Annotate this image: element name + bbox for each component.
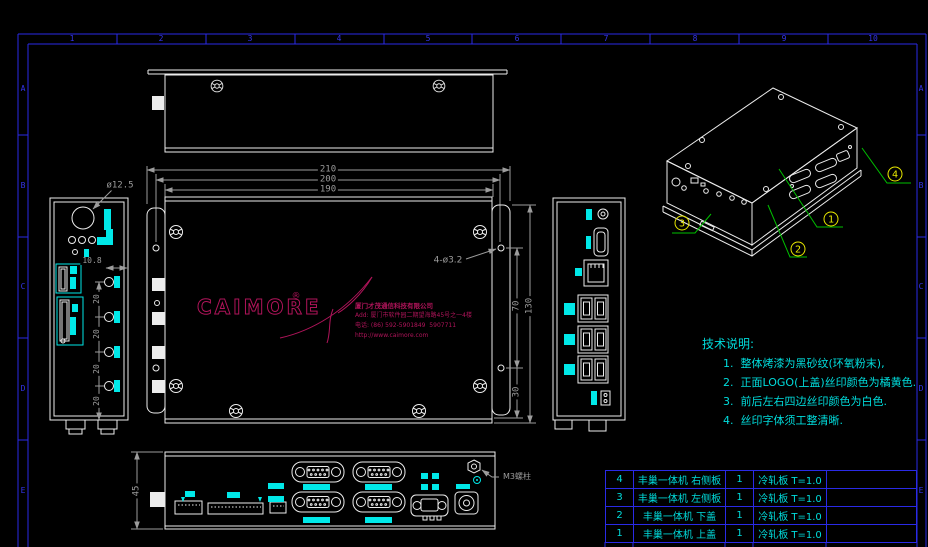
bom-qty: 1 (725, 506, 753, 524)
bom-qty: 1 (725, 524, 753, 542)
bom-qty: 1 (725, 488, 753, 506)
dim-30: 30 (513, 385, 522, 400)
zone-number: 10 (868, 35, 878, 43)
isometric-view: 3 1 2 4 (663, 88, 911, 257)
zone-letter-right: B (919, 182, 924, 190)
bom-remark (826, 506, 916, 524)
tech-note-item: 2. 正面LOGO(上盖)丝印颜色为橘黄色. (723, 377, 916, 388)
zone-letter-left: E (21, 487, 26, 495)
bottom-view (131, 452, 499, 529)
svg-text:4: 4 (892, 170, 898, 181)
dim-200: 200 (318, 176, 338, 185)
bom-no: 1 (605, 524, 633, 542)
zone-number: 3 (248, 35, 253, 43)
zone-letter-right: E (919, 487, 924, 495)
cad-drawing-canvas: CAIMORE (0, 0, 928, 547)
bom-name: 丰巢一体机 下盖 (633, 506, 725, 524)
svg-text:1: 1 (828, 215, 834, 226)
tech-note-item: 3. 前后左右四边丝印颜色为白色. (723, 396, 887, 407)
zone-letter-left: A (21, 85, 26, 93)
zone-number: 8 (693, 35, 698, 43)
company-website: http://www.caimore.com (355, 333, 428, 339)
dim-20: 20 (93, 362, 101, 376)
dim-130: 130 (526, 296, 535, 316)
dim-45: 45 (133, 484, 142, 499)
left-side-view (50, 190, 128, 434)
zone-letter-right: D (919, 385, 924, 393)
bom-no: 3 (605, 488, 633, 506)
balloon-2: 2 (791, 242, 805, 256)
dim-hole-callout: 4-ø3.2 (432, 257, 465, 266)
top-view (148, 70, 507, 152)
bom-remark (826, 470, 916, 488)
bom-remark (826, 524, 916, 542)
cad-linework: CAIMORE (0, 0, 928, 547)
dim-20: 20 (93, 292, 101, 306)
svg-text:3: 3 (679, 219, 685, 230)
bom-table: 4 丰巢一体机 右侧板 1 冷轧板 T=1.0 3 丰巢一体机 左侧板 1 冷轧… (605, 470, 917, 543)
zone-letter-left: B (21, 182, 26, 190)
company-name: 厦门才茂通信科技有限公司 (355, 303, 433, 310)
bom-remark (826, 488, 916, 506)
dim-20: 20 (93, 327, 101, 341)
front-view: CAIMORE (147, 166, 536, 423)
tech-note-item: 4. 丝印字体须工整清晰. (723, 415, 843, 426)
bom-name: 丰巢一体机 右侧板 (633, 470, 725, 488)
balloon-1: 1 (824, 212, 838, 226)
company-address: Add: 厦门市软件园二期望海路45号之一4楼 (355, 313, 472, 319)
zone-number: 1 (70, 35, 75, 43)
balloon-4: 4 (888, 167, 902, 181)
zone-letter-right: C (919, 283, 924, 291)
zone-number: 2 (159, 35, 164, 43)
bom-qty: 1 (725, 470, 753, 488)
dim-190: 190 (318, 186, 338, 195)
dim-10-8: 10.8 (80, 257, 103, 265)
zone-number: 5 (426, 35, 431, 43)
zone-number: 9 (782, 35, 787, 43)
dim-dia12-5: ø12.5 (104, 182, 135, 191)
bom-material: 冷轧板 T=1.0 (753, 524, 826, 542)
bom-material: 冷轧板 T=1.0 (753, 506, 826, 524)
tech-notes-title: 技术说明: (702, 338, 754, 350)
company-phone: 电话: (86) 592-5901849 5907711 (355, 323, 456, 329)
zone-letter-right: A (919, 85, 924, 93)
dim-210: 210 (318, 166, 338, 175)
bom-material: 冷轧板 T=1.0 (753, 488, 826, 506)
bom-name: 丰巢一体机 左侧板 (633, 488, 725, 506)
dim-20: 20 (93, 394, 101, 408)
zone-number: 4 (337, 35, 342, 43)
bom-no: 4 (605, 470, 633, 488)
dim-m3-callout: M3螺柱 (501, 473, 533, 481)
registered-mark: ® (292, 293, 301, 302)
zone-number: 6 (515, 35, 520, 43)
bom-name: 丰巢一体机 上盖 (633, 524, 725, 542)
zone-number: 7 (604, 35, 609, 43)
balloon-3: 3 (675, 216, 689, 230)
zone-letter-left: C (21, 283, 26, 291)
svg-text:2: 2 (795, 245, 801, 256)
bom-no: 2 (605, 506, 633, 524)
caimore-logo-text: CAIMORE (197, 295, 322, 319)
bom-material: 冷轧板 T=1.0 (753, 470, 826, 488)
zone-letter-left: D (21, 385, 26, 393)
dim-70: 70 (513, 299, 522, 314)
tech-note-item: 1. 整体烤漆为黑砂纹(环氧粉末), (723, 358, 885, 369)
right-side-view (553, 198, 625, 431)
